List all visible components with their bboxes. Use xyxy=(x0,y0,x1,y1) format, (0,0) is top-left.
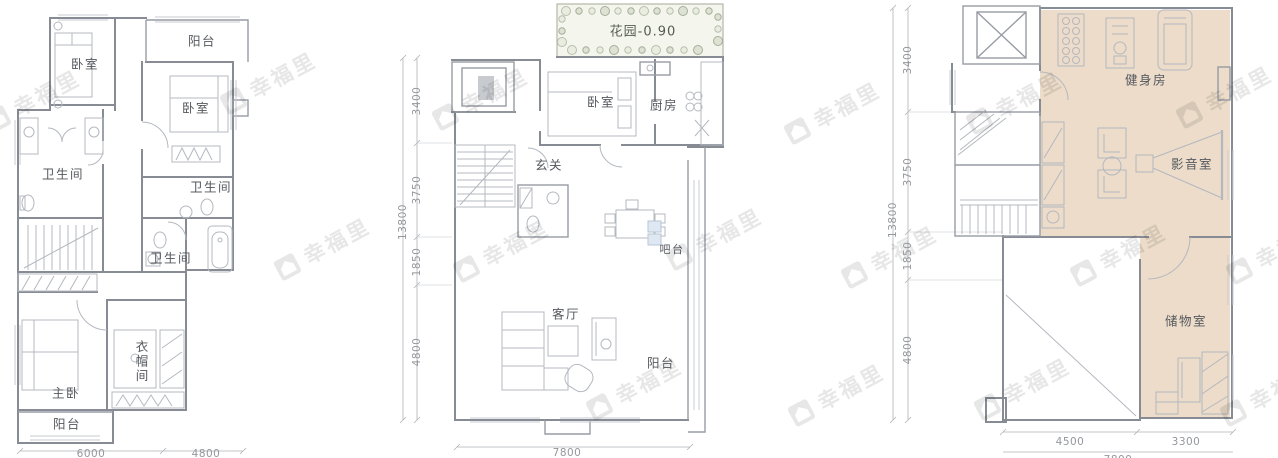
room-label-foyer: 玄关 xyxy=(535,155,563,174)
floorplan-canvas xyxy=(0,0,1278,458)
room-label-storage: 储物室 xyxy=(1165,311,1207,330)
dim-middle-h1: 3400 xyxy=(411,87,423,116)
dim-left-width2: 4800 xyxy=(192,448,221,458)
room-label-balcony-m: 阳台 xyxy=(647,353,675,372)
dim-middle-total-height: 13800 xyxy=(397,204,409,240)
room-label-balcony-bottom: 阳台 xyxy=(53,414,81,433)
dim-left-width1: 6000 xyxy=(77,448,106,458)
room-label-bedroom-m: 卧室 xyxy=(587,92,615,111)
room-label-garden: 花园-0.90 xyxy=(610,21,677,40)
room-label-bedroom1: 卧室 xyxy=(71,54,99,73)
left-plan-windows xyxy=(15,15,240,440)
dim-right-w2: 3300 xyxy=(1172,436,1201,448)
room-label-bar: 吧台 xyxy=(660,241,685,257)
room-label-bedroom2: 卧室 xyxy=(182,98,210,117)
dim-right-h2: 3750 xyxy=(902,158,914,187)
room-label-cloakroom: 衣帽间 xyxy=(132,340,151,384)
left-plan-walls xyxy=(18,18,233,443)
room-label-master-bedroom: 主卧 xyxy=(52,383,80,402)
room-label-bath2: 卫生间 xyxy=(190,177,232,196)
dim-right-h1: 3400 xyxy=(902,46,914,75)
room-label-bath3: 卫生间 xyxy=(150,248,192,267)
room-label-living: 客厅 xyxy=(552,304,580,323)
room-label-media: 影音室 xyxy=(1171,154,1213,173)
dim-middle-h3: 1850 xyxy=(411,248,423,277)
dim-middle-width: 7800 xyxy=(553,447,582,458)
dim-right-w1: 4500 xyxy=(1056,436,1085,448)
dim-middle-h2: 3750 xyxy=(411,176,423,205)
dim-middle-h4: 4800 xyxy=(411,338,423,367)
room-label-bath1: 卫生间 xyxy=(42,164,84,183)
floorplan-page: 幸福里 幸福里 幸福里 幸福里 幸福里 幸福里 幸福里 幸福里 幸福里 幸福里 … xyxy=(0,0,1278,458)
middle-plan-dim-lines xyxy=(400,55,693,450)
dim-right-h3: 1850 xyxy=(902,242,914,271)
dim-right-total-width: 7800 xyxy=(1104,454,1133,458)
dim-right-h4: 4800 xyxy=(902,336,914,365)
room-label-gym: 健身房 xyxy=(1125,70,1167,89)
room-label-balcony-top: 阳台 xyxy=(188,31,216,50)
dim-right-total-height: 13800 xyxy=(887,202,899,238)
room-label-kitchen: 厨房 xyxy=(650,95,678,114)
